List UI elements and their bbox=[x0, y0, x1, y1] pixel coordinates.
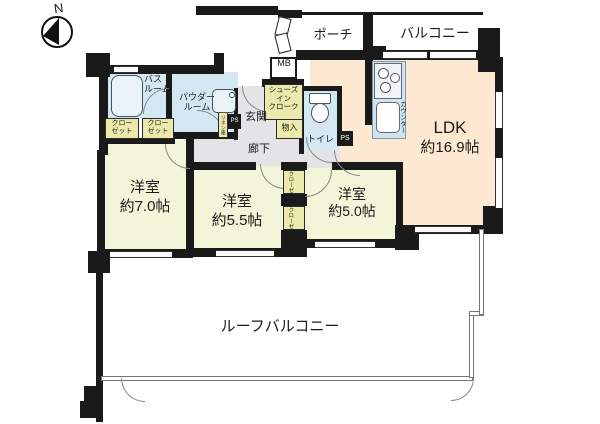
label-linen: リネン庫 bbox=[219, 113, 225, 137]
label-bathroom: バスルーム bbox=[144, 74, 171, 95]
label-toilet: トイレ bbox=[303, 134, 338, 144]
toilet-bowl bbox=[311, 103, 329, 123]
label-ldk-name: LDK bbox=[410, 118, 490, 138]
pipe-space-box: PS bbox=[337, 131, 353, 146]
roof-balcony-fence bbox=[469, 311, 474, 378]
label-storage: 物入 bbox=[276, 123, 303, 132]
window bbox=[216, 250, 274, 257]
roof-balcony-fence bbox=[479, 229, 484, 315]
label-genkan: 玄関 bbox=[238, 111, 274, 124]
window bbox=[415, 226, 471, 233]
stove-burner bbox=[380, 82, 391, 93]
porch-door-leaf bbox=[274, 32, 291, 54]
wall bbox=[337, 86, 342, 133]
window bbox=[495, 92, 503, 128]
floor-plan: PS PS N ポーチ バルコニー ルーフバルコニー バスルーム パウダールーム… bbox=[0, 0, 600, 424]
wall bbox=[80, 401, 103, 418]
label-western2-size: 約5.5帖 bbox=[197, 212, 277, 229]
label-western3-name: 洋室 bbox=[317, 186, 387, 202]
wall bbox=[300, 12, 367, 15]
label-western1-size: 約7.0帖 bbox=[105, 198, 185, 215]
wall bbox=[214, 53, 224, 74]
wall bbox=[396, 162, 403, 232]
window bbox=[430, 51, 476, 59]
north-label: N bbox=[53, 0, 64, 16]
label-corridor: 廊下 bbox=[238, 143, 280, 156]
roof-balcony-fence bbox=[101, 376, 473, 381]
label-western2-name: 洋室 bbox=[202, 193, 272, 210]
label-roof-balcony: ルーフバルコニー bbox=[210, 318, 350, 335]
wall bbox=[367, 12, 483, 15]
kitchen-sink bbox=[376, 102, 400, 133]
wall bbox=[97, 150, 105, 257]
window bbox=[383, 51, 427, 59]
label-closet-vertical: クローゼット bbox=[287, 207, 293, 229]
stove-burner bbox=[378, 68, 389, 79]
washbasin-faucet bbox=[229, 92, 235, 98]
label-western3-size: 約5.0帖 bbox=[312, 203, 392, 219]
door-arc bbox=[121, 378, 145, 402]
north-compass: N bbox=[34, 0, 82, 54]
window bbox=[315, 241, 375, 248]
window bbox=[110, 251, 172, 258]
label-western1-name: 洋室 bbox=[110, 179, 180, 196]
wall bbox=[281, 194, 307, 206]
label-shoes-in-cloak: シューズインクローク bbox=[264, 86, 303, 112]
stove-burner bbox=[390, 73, 400, 83]
label-counter: カウンター bbox=[398, 95, 405, 139]
label-balcony: バルコニー bbox=[395, 25, 475, 41]
door-arc bbox=[451, 378, 474, 401]
label-closet-1: クローゼット bbox=[105, 120, 139, 136]
label-meter-box: MB bbox=[272, 58, 296, 68]
wall bbox=[194, 162, 256, 170]
wall bbox=[302, 86, 342, 91]
label-closet-2: クローゼット bbox=[142, 120, 174, 136]
window bbox=[495, 158, 503, 208]
label-porch: ポーチ bbox=[300, 28, 366, 43]
label-powder-room: パウダールーム bbox=[174, 92, 220, 113]
bathtub bbox=[111, 75, 143, 117]
label-ldk-size: 約16.9帖 bbox=[405, 139, 495, 156]
label-closet-vertical: クローゼット bbox=[287, 171, 293, 193]
window bbox=[114, 66, 138, 73]
wall bbox=[296, 50, 376, 60]
wall bbox=[196, 6, 278, 15]
